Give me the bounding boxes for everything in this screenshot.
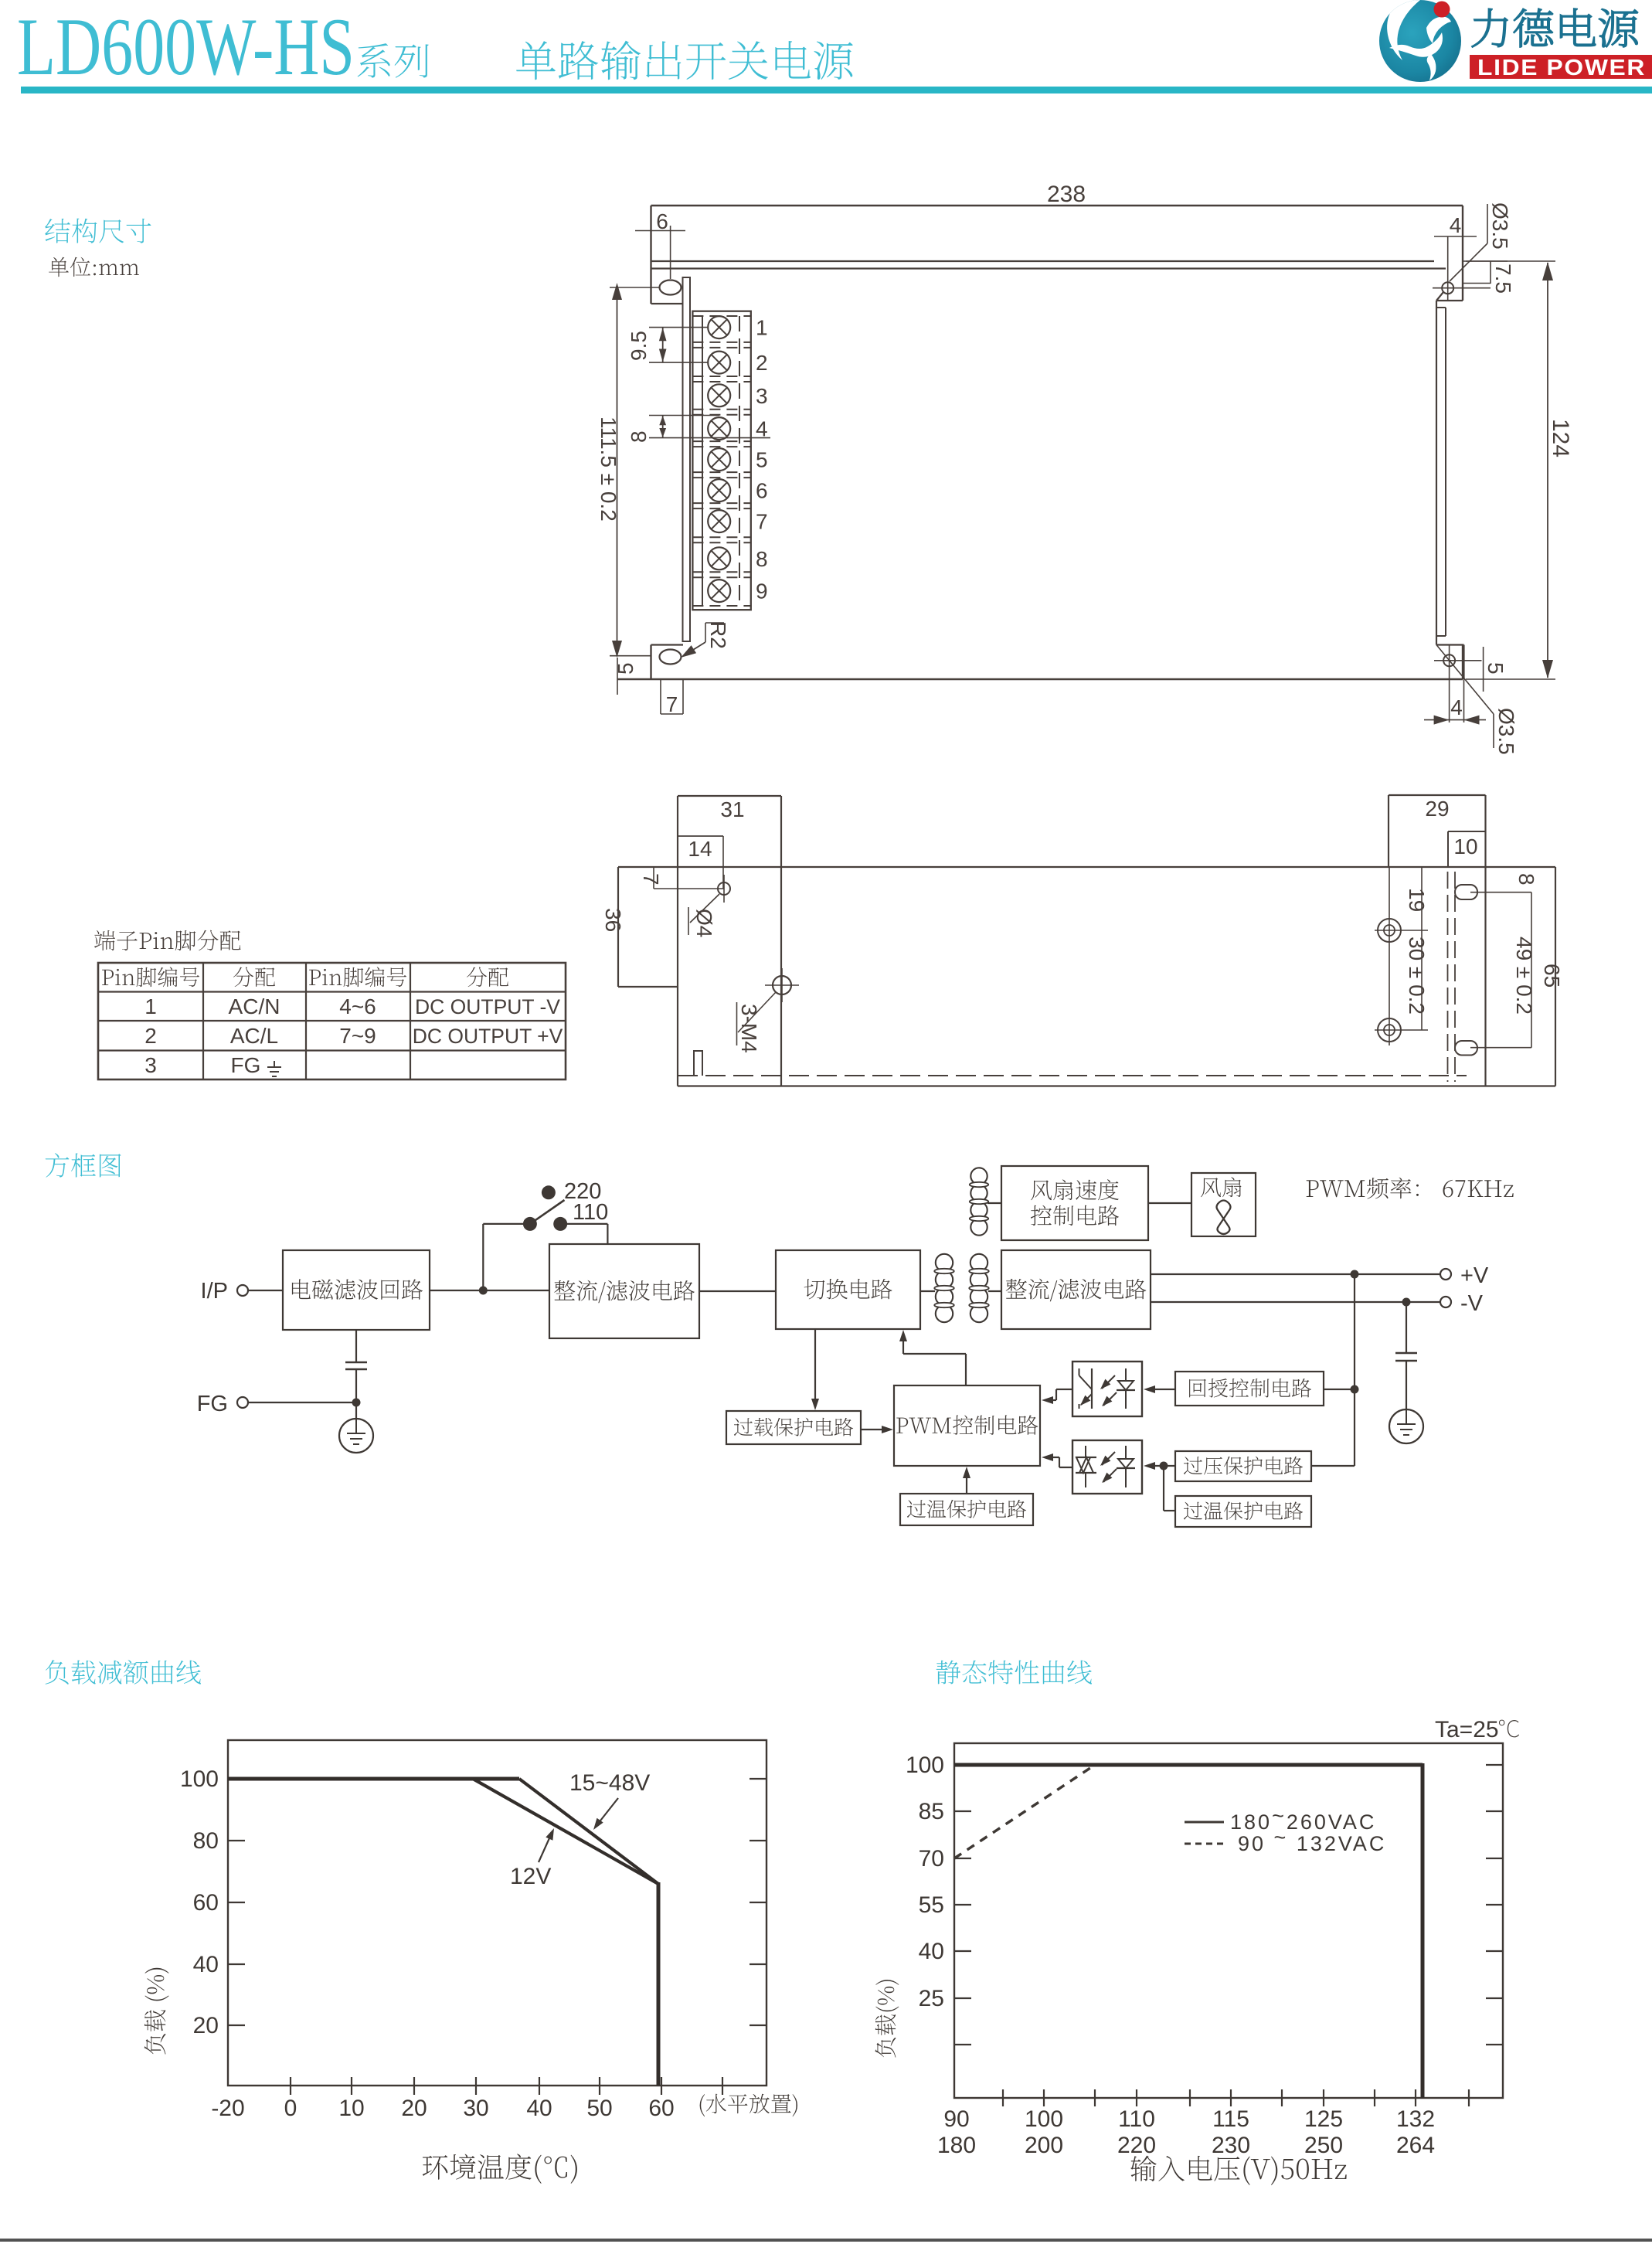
- svg-text:10: 10: [338, 2096, 364, 2121]
- svg-text:100: 100: [906, 1753, 944, 1778]
- svg-text:2: 2: [756, 351, 768, 375]
- svg-text:Ø3.5: Ø3.5: [1488, 202, 1512, 250]
- svg-text:180: 180: [937, 2133, 976, 2158]
- svg-text:AC/N: AC/N: [229, 994, 280, 1018]
- svg-text:DC OUTPUT +V: DC OUTPUT +V: [413, 1025, 563, 1048]
- svg-text:Ø4: Ø4: [692, 909, 716, 937]
- svg-text:55: 55: [919, 1892, 944, 1918]
- svg-text:124: 124: [1548, 419, 1573, 457]
- svg-text:I/P: I/P: [201, 1279, 228, 1304]
- svg-text:40: 40: [526, 2096, 552, 2121]
- svg-text:31: 31: [720, 797, 744, 821]
- svg-text:LD600W-HS: LD600W-HS: [17, 2, 355, 92]
- svg-text:8: 8: [627, 430, 651, 443]
- svg-text:Ø3.5: Ø3.5: [1494, 708, 1518, 755]
- svg-text:60: 60: [193, 1890, 219, 1916]
- svg-text:7: 7: [756, 510, 768, 534]
- svg-text:5: 5: [756, 448, 768, 472]
- svg-text:70: 70: [919, 1846, 944, 1872]
- svg-text:80: 80: [193, 1828, 219, 1854]
- svg-text:125: 125: [1304, 2106, 1343, 2132]
- svg-text:111.5 ± 0.2: 111.5 ± 0.2: [597, 416, 620, 522]
- svg-text:10: 10: [1453, 835, 1477, 858]
- svg-text:25: 25: [919, 1986, 944, 2011]
- svg-text:85: 85: [919, 1799, 944, 1824]
- svg-text:6: 6: [656, 209, 668, 233]
- svg-text:4: 4: [1450, 213, 1462, 237]
- svg-text:6: 6: [756, 479, 768, 503]
- svg-text:230: 230: [1212, 2133, 1250, 2158]
- svg-text:9.5: 9.5: [627, 331, 651, 361]
- svg-text:110: 110: [1118, 2106, 1155, 2132]
- svg-text:50: 50: [586, 2096, 612, 2121]
- svg-text:1: 1: [756, 316, 768, 340]
- svg-text:36: 36: [601, 908, 625, 932]
- svg-text:FG: FG: [197, 1392, 228, 1416]
- svg-text:100: 100: [1025, 2106, 1063, 2132]
- svg-text:110: 110: [573, 1200, 608, 1225]
- svg-text:7.5: 7.5: [1491, 263, 1515, 294]
- svg-text:9: 9: [756, 580, 768, 603]
- svg-text:3-M4: 3-M4: [737, 1004, 761, 1053]
- svg-text:12V: 12V: [510, 1864, 551, 1889]
- svg-text:30: 30: [463, 2096, 488, 2121]
- svg-text:115: 115: [1212, 2106, 1249, 2132]
- svg-text:-20: -20: [211, 2096, 244, 2121]
- svg-text:7: 7: [639, 873, 663, 886]
- svg-text:8: 8: [1514, 873, 1538, 886]
- svg-text:40: 40: [193, 1952, 219, 1977]
- svg-text:65: 65: [1540, 964, 1564, 988]
- svg-text:FG: FG: [231, 1053, 261, 1077]
- svg-text:29: 29: [1425, 797, 1449, 821]
- svg-text:100: 100: [180, 1766, 219, 1792]
- svg-text:5: 5: [1484, 662, 1508, 675]
- svg-text:3: 3: [144, 1053, 157, 1077]
- svg-text:5: 5: [614, 662, 637, 675]
- svg-text:15~48V: 15~48V: [569, 1770, 650, 1796]
- svg-text:+V: +V: [1460, 1263, 1489, 1288]
- svg-text:60: 60: [648, 2096, 674, 2121]
- svg-text:7: 7: [666, 692, 678, 716]
- svg-text:19: 19: [1405, 888, 1429, 912]
- svg-text:30 ± 0.2: 30 ± 0.2: [1405, 937, 1429, 1015]
- svg-text:14: 14: [688, 837, 712, 861]
- svg-text:7~9: 7~9: [339, 1024, 376, 1048]
- svg-text:R2: R2: [706, 621, 730, 649]
- svg-text:250: 250: [1304, 2133, 1343, 2158]
- svg-text:20: 20: [193, 2013, 219, 2038]
- svg-text:1: 1: [144, 994, 157, 1018]
- svg-text:0: 0: [284, 2096, 297, 2121]
- svg-text:DC OUTPUT -V: DC OUTPUT -V: [415, 995, 560, 1018]
- svg-text:90: 90: [943, 2106, 969, 2132]
- svg-text:LIDE POWER: LIDE POWER: [1477, 56, 1646, 80]
- svg-text:49 ± 0.2: 49 ± 0.2: [1512, 937, 1536, 1015]
- svg-text:40: 40: [919, 1939, 944, 1964]
- svg-text:132: 132: [1396, 2106, 1435, 2132]
- svg-text:4~6: 4~6: [339, 994, 376, 1018]
- svg-text:200: 200: [1025, 2133, 1063, 2158]
- svg-text:3: 3: [756, 384, 768, 408]
- svg-text:4: 4: [1450, 695, 1463, 719]
- svg-text:AC/L: AC/L: [230, 1024, 278, 1048]
- svg-text:238: 238: [1047, 182, 1086, 207]
- svg-text:-V: -V: [1460, 1291, 1484, 1316]
- svg-text:8: 8: [756, 547, 768, 571]
- svg-text:2: 2: [144, 1024, 157, 1048]
- svg-text:264: 264: [1396, 2133, 1435, 2158]
- svg-text:Ta=25: Ta=25: [1435, 1717, 1499, 1742]
- svg-text:220: 220: [1117, 2133, 1156, 2158]
- svg-text:20: 20: [401, 2096, 427, 2121]
